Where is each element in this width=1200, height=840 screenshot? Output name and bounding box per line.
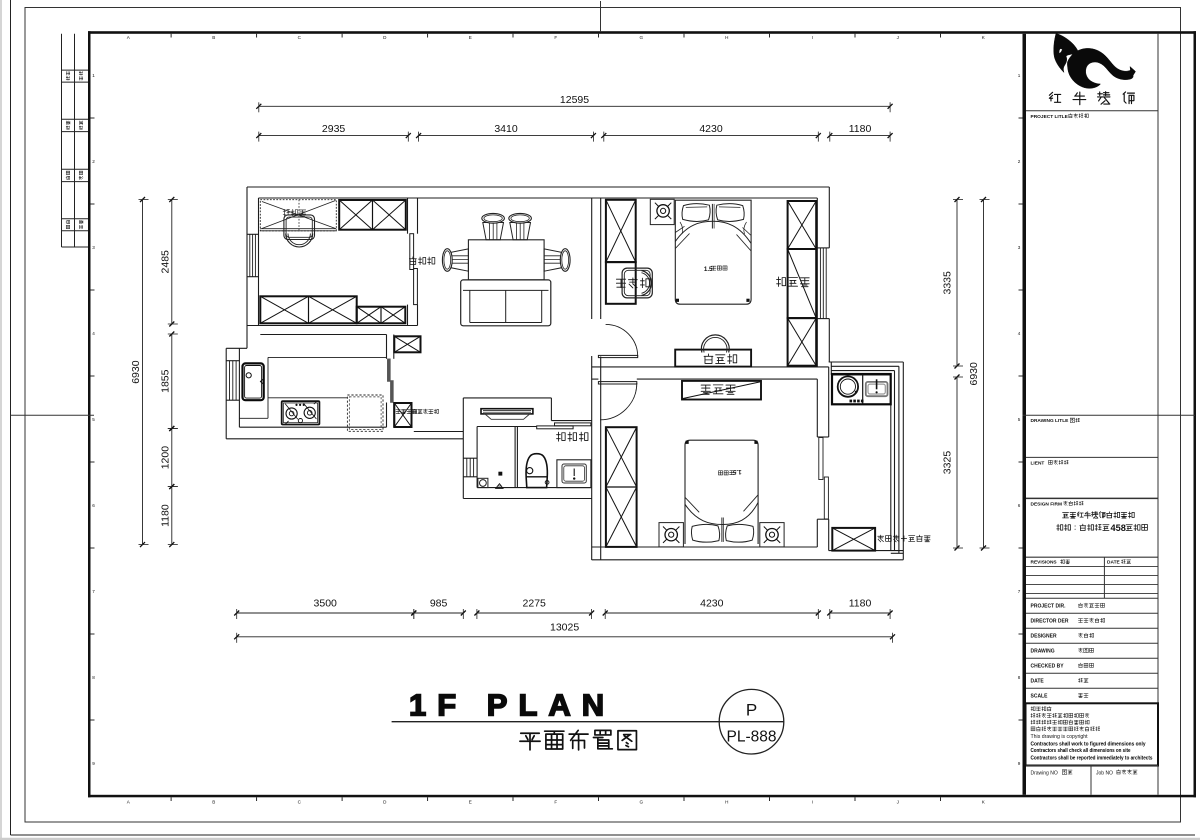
svg-text:1F PLAN: 1F PLAN <box>409 688 615 723</box>
svg-text:6: 6 <box>92 503 95 508</box>
svg-text:DIRECTOR DER: DIRECTOR DER <box>1031 619 1069 625</box>
svg-text:Contractors shall be reported: Contractors shall be reported immediatel… <box>1031 755 1153 761</box>
svg-text:6: 6 <box>1018 503 1021 508</box>
svg-text:4230: 4230 <box>699 123 723 135</box>
svg-text:1: 1 <box>92 73 95 78</box>
svg-text:Contractors shall work to figu: Contractors shall work to figured dimens… <box>1031 741 1146 747</box>
svg-text:Job NO: Job NO <box>1096 770 1113 776</box>
svg-text:F: F <box>554 35 557 40</box>
svg-text:J: J <box>897 35 899 40</box>
svg-text:9: 9 <box>1018 761 1021 766</box>
svg-text:5: 5 <box>1018 417 1021 422</box>
svg-text:8: 8 <box>92 675 95 680</box>
svg-text:DRAWING LITLE: DRAWING LITLE <box>1031 418 1070 424</box>
svg-text:3: 3 <box>92 245 95 250</box>
svg-text:CHECKED BY: CHECKED BY <box>1031 664 1065 670</box>
svg-text:2: 2 <box>92 159 95 164</box>
svg-text:J: J <box>897 800 899 805</box>
svg-text:F: F <box>554 800 557 805</box>
svg-text:1855: 1855 <box>159 369 171 393</box>
svg-text:1180: 1180 <box>849 598 872 610</box>
svg-text:G: G <box>640 800 644 805</box>
svg-text:4: 4 <box>1018 331 1021 336</box>
svg-text:3325: 3325 <box>942 451 954 475</box>
svg-text:13025: 13025 <box>550 622 579 634</box>
svg-text:I: I <box>812 800 813 805</box>
svg-text:SCALE: SCALE <box>1031 694 1049 700</box>
svg-text:1180: 1180 <box>849 123 872 135</box>
svg-text:DATE: DATE <box>1031 679 1045 685</box>
svg-text:1200: 1200 <box>159 446 171 470</box>
svg-text:PROJECT LITLE: PROJECT LITLE <box>1031 114 1069 120</box>
svg-text:This drawing is copyright: This drawing is copyright <box>1031 734 1089 740</box>
svg-text:DESIGN FIRM: DESIGN FIRM <box>1031 501 1062 507</box>
svg-text:7: 7 <box>92 589 95 594</box>
svg-text:E: E <box>469 800 472 805</box>
svg-text:PROJECT DIR.: PROJECT DIR. <box>1031 604 1067 610</box>
svg-text:Drawing NO: Drawing NO <box>1031 770 1058 776</box>
svg-text:P: P <box>746 701 757 720</box>
svg-text:1180: 1180 <box>159 504 171 527</box>
svg-text:9: 9 <box>92 761 95 766</box>
svg-text:1.5: 1.5 <box>732 468 741 475</box>
svg-text:DRAWING: DRAWING <box>1031 649 1055 655</box>
svg-text:5: 5 <box>92 417 95 422</box>
svg-text:B: B <box>212 800 215 805</box>
svg-text:1: 1 <box>1018 73 1021 78</box>
svg-text:3500: 3500 <box>314 598 338 610</box>
svg-text:2935: 2935 <box>322 123 346 135</box>
svg-text:4: 4 <box>92 331 95 336</box>
svg-text:H: H <box>725 35 728 40</box>
svg-text:I: I <box>812 35 813 40</box>
svg-text:985: 985 <box>430 598 448 610</box>
svg-text:4230: 4230 <box>700 598 724 610</box>
svg-text:12595: 12595 <box>560 94 589 106</box>
svg-text:DESIGNER: DESIGNER <box>1031 634 1058 640</box>
svg-text:B: B <box>212 35 215 40</box>
svg-text:6930: 6930 <box>968 362 980 386</box>
svg-text:1.5: 1.5 <box>704 266 713 273</box>
svg-text:3335: 3335 <box>942 271 954 295</box>
svg-text:DATE: DATE <box>1107 560 1121 566</box>
svg-text:7: 7 <box>1018 589 1021 594</box>
svg-text:8: 8 <box>1018 675 1021 680</box>
svg-text:458: 458 <box>1111 523 1126 533</box>
svg-text:6930: 6930 <box>130 360 142 384</box>
svg-text:LIENT: LIENT <box>1031 460 1045 466</box>
svg-text:PL-888: PL-888 <box>727 729 777 746</box>
svg-text:Contractors shall check all di: Contractors shall check all dimensions o… <box>1031 748 1131 754</box>
svg-text:E: E <box>469 35 472 40</box>
svg-text:2: 2 <box>1018 159 1021 164</box>
svg-text:H: H <box>725 800 728 805</box>
svg-text:2275: 2275 <box>523 598 547 610</box>
svg-text:REVISIONS: REVISIONS <box>1031 560 1058 566</box>
svg-text:3: 3 <box>1018 245 1021 250</box>
svg-text:G: G <box>640 35 644 40</box>
svg-text:3410: 3410 <box>494 123 518 135</box>
svg-text:2485: 2485 <box>159 250 171 274</box>
